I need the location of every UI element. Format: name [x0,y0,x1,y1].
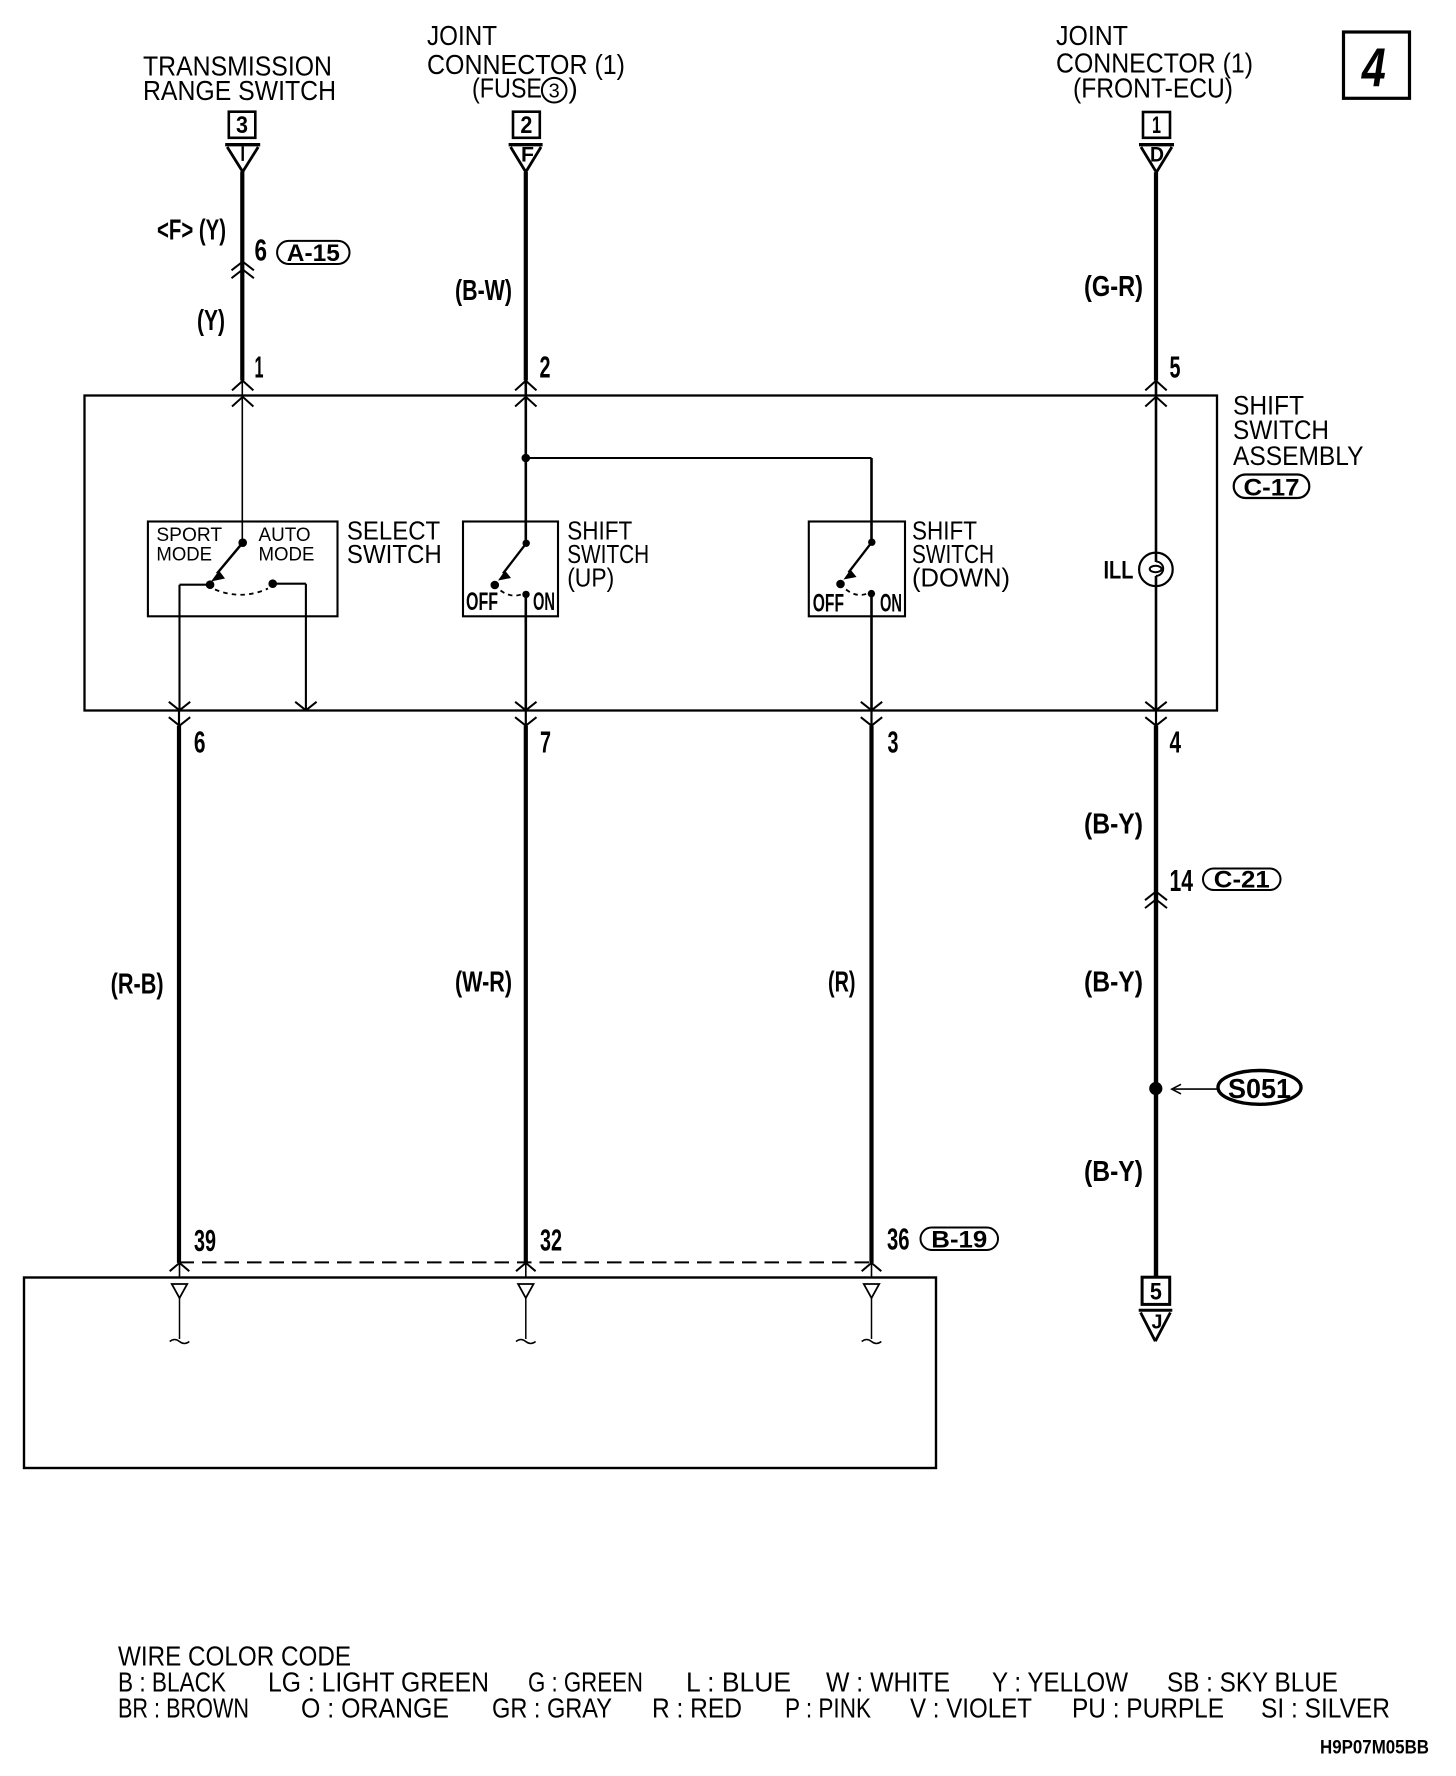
svg-text:(B-W): (B-W) [455,275,512,307]
svg-text:RANGE SWITCH: RANGE SWITCH [143,75,336,106]
svg-text:ASSEMBLY: ASSEMBLY [1233,441,1364,471]
svg-text:(FUSE: (FUSE [472,73,542,104]
svg-text:3: 3 [549,80,560,102]
svg-text:2: 2 [520,112,532,139]
svg-text:36: 36 [887,1222,910,1257]
svg-text:PU : PURPLE: PU : PURPLE [1072,1693,1224,1724]
svg-text:ON: ON [533,588,555,616]
svg-text:ILL: ILL [1104,557,1134,585]
svg-text:V : VIOLET: V : VIOLET [910,1693,1032,1724]
svg-text:A-15: A-15 [287,240,340,267]
svg-text:4: 4 [1361,36,1386,98]
svg-text:BR : BROWN: BR : BROWN [118,1693,249,1724]
svg-text:(Y): (Y) [197,305,225,337]
svg-text:5: 5 [1170,350,1181,385]
svg-text:(B-Y): (B-Y) [1084,967,1143,999]
svg-text:7: 7 [540,724,551,759]
svg-text:MODE: MODE [156,544,212,565]
svg-text:1: 1 [255,350,264,385]
svg-text:P : PINK: P : PINK [785,1693,871,1724]
svg-text:JOINT: JOINT [1056,20,1128,51]
svg-text:32: 32 [540,1223,562,1258]
svg-text:S051: S051 [1228,1073,1291,1104]
svg-text:ON: ON [880,590,902,618]
svg-text:(B-Y): (B-Y) [1084,1156,1143,1188]
svg-text:D: D [1150,143,1164,167]
svg-text:SWITCH: SWITCH [347,539,442,569]
svg-text:6: 6 [194,724,206,759]
svg-text:(R-B): (R-B) [111,969,164,1001]
svg-text:C-21: C-21 [1214,867,1270,894]
svg-text:GR : GRAY: GR : GRAY [492,1693,612,1724]
svg-text:R : RED: R : RED [652,1693,742,1724]
svg-text:4: 4 [1170,724,1182,759]
svg-text:SPORT: SPORT [156,525,222,546]
svg-text:JOINT: JOINT [427,20,497,51]
svg-text:B-19: B-19 [931,1226,987,1253]
svg-text:(G-R): (G-R) [1084,271,1143,303]
svg-text:(R): (R) [828,967,856,999]
svg-text:5: 5 [1150,1278,1162,1305]
svg-text:OFF: OFF [466,588,498,616]
svg-text:3: 3 [888,724,899,759]
svg-text:6: 6 [255,232,268,267]
svg-text:OFF: OFF [813,590,844,618]
svg-text:MODE: MODE [259,544,315,565]
svg-text:): ) [569,73,578,104]
svg-text:(W-R): (W-R) [455,967,512,999]
svg-text:1: 1 [1152,112,1161,139]
svg-text:(DOWN): (DOWN) [912,563,1010,593]
svg-text:J: J [1152,1312,1163,1334]
svg-text:(B-Y): (B-Y) [1084,809,1143,841]
svg-text:(UP): (UP) [567,563,614,593]
svg-text:H9P07M05BB: H9P07M05BB [1320,1738,1429,1759]
svg-text:C-17: C-17 [1244,474,1300,501]
svg-text:2: 2 [540,350,551,385]
svg-text:F: F [521,143,534,167]
svg-text:AUTO: AUTO [259,525,311,546]
svg-text:39: 39 [194,1223,216,1258]
svg-text:O : ORANGE: O : ORANGE [301,1693,449,1724]
svg-text:3: 3 [236,112,248,139]
svg-text:(FRONT-ECU): (FRONT-ECU) [1073,73,1233,104]
svg-text:<F> (Y): <F> (Y) [157,215,226,247]
svg-text:SI : SILVER: SI : SILVER [1261,1693,1390,1724]
svg-text:14: 14 [1170,863,1194,898]
